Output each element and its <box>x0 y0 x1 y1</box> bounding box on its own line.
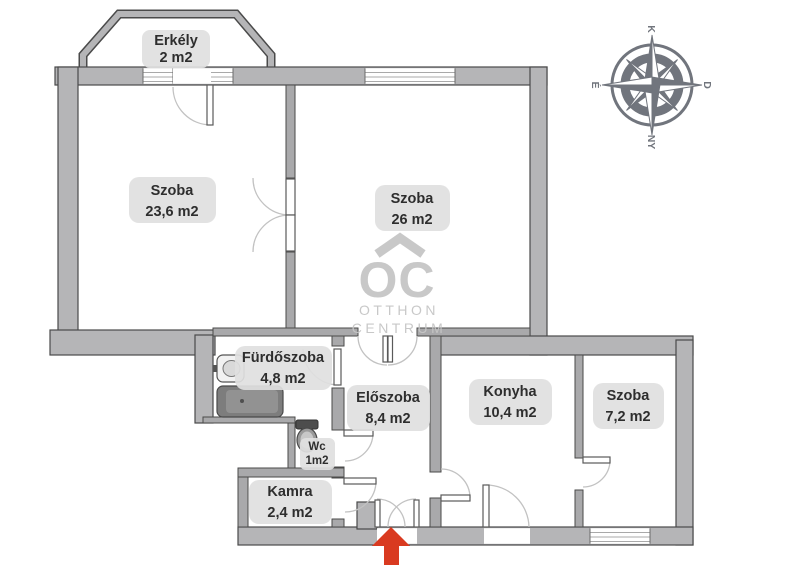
entrance-double-door <box>375 499 419 527</box>
kitchen-door-opening <box>484 528 530 544</box>
room-name: Fürdőszoba <box>242 350 325 366</box>
room-name: Szoba <box>391 191 435 207</box>
wall-room-divider-lower <box>286 252 295 330</box>
window-balcony <box>143 68 173 84</box>
compass-main-points <box>602 35 702 135</box>
room-label-erkely: Erkély 2 m2 <box>142 30 210 68</box>
compass-label-top: K <box>645 25 657 33</box>
room-name: Erkély <box>154 33 198 49</box>
compass-label-right: D <box>701 81 713 89</box>
room-label-szoba-kozepso: Szoba 26 m2 <box>375 185 450 231</box>
room-name: Kamra <box>267 484 313 500</box>
watermark-line2: CENTRUM <box>352 320 447 336</box>
wall-top <box>55 67 547 85</box>
room-name: Szoba <box>151 183 195 199</box>
room-label-szoba-kis: Szoba 7,2 m2 <box>593 383 664 429</box>
room-label-eloszoba: Előszoba 8,4 m2 <box>347 385 430 431</box>
kitchen-bottom-door <box>483 485 529 527</box>
wall-hall-left-seg1 <box>332 336 344 346</box>
room-area: 23,6 m2 <box>145 204 198 220</box>
room-label-furdoszoba: Fürdőszoba 4,8 m2 <box>235 346 332 390</box>
room-label-kamra: Kamra 2,4 m2 <box>249 480 332 524</box>
room-name: Szoba <box>607 388 651 404</box>
room-area: 2 m2 <box>159 50 192 66</box>
wall-pantry-left <box>238 477 248 527</box>
compass-label-bottom: NY <box>645 135 657 150</box>
room-label-wc: Wc 1m2 <box>300 438 335 470</box>
room-area: 8,4 m2 <box>365 411 410 427</box>
room-name: Előszoba <box>356 390 421 406</box>
wall-kitchen-left-upper <box>430 336 441 472</box>
double-door-between-rooms <box>253 178 295 252</box>
room-label-szoba-nagy: Szoba 23,6 m2 <box>129 177 216 223</box>
wall-right <box>676 340 693 545</box>
room-name: Konyha <box>483 384 537 400</box>
wall-hall-left-seg2 <box>332 388 344 430</box>
wall-hall-left-seg4 <box>332 519 344 527</box>
room-area: 2,4 m2 <box>267 505 312 521</box>
wall-south-band <box>50 330 215 355</box>
window-balcony-sidelight <box>211 68 233 84</box>
window-midroom <box>365 68 455 84</box>
double-door-hall-to-midroom <box>358 336 417 365</box>
wall-entrance-stub <box>357 502 377 529</box>
bathtub-icon <box>217 386 283 417</box>
wall-wc-left <box>288 423 295 468</box>
wall-left <box>58 67 78 335</box>
wall-hall-top-left <box>213 328 358 336</box>
watermark-logo: OC OTTHON CENTRUM <box>352 238 447 336</box>
wall-room-divider-upper <box>286 85 295 178</box>
wall-kitchen-room-divider <box>575 355 583 458</box>
room-area: 7,2 m2 <box>605 409 650 425</box>
wall-midroom-right <box>530 67 547 355</box>
room-label-konyha: Konyha 10,4 m2 <box>469 379 552 425</box>
wall-kitchen-top <box>440 336 693 355</box>
room-area: 26 m2 <box>391 212 432 228</box>
compass-rose: K D NY É <box>589 25 713 149</box>
room-area: 4,8 m2 <box>260 371 305 387</box>
balcony-door-opening <box>173 68 211 84</box>
wall-bath-bottom <box>203 417 295 423</box>
watermark-line1: OTTHON <box>359 302 439 318</box>
kitchen-smallroom-door <box>583 457 610 487</box>
room-name: Wc <box>308 441 326 453</box>
compass-label-left: É <box>589 81 602 88</box>
wc-door <box>344 430 373 461</box>
watermark-monogram: OC <box>359 252 436 308</box>
wall-kitchen-room-stub <box>575 490 583 527</box>
wall-kitchen-left-stub <box>430 498 441 527</box>
room-area: 1m2 <box>305 455 328 467</box>
wall-bath-left <box>195 335 213 423</box>
kitchen-entry-door <box>441 469 470 501</box>
room-area: 10,4 m2 <box>483 405 536 421</box>
floor-plan: OC OTTHON CENTRUM <box>0 0 800 565</box>
window-small-room <box>590 528 650 544</box>
balcony-door <box>173 85 213 125</box>
